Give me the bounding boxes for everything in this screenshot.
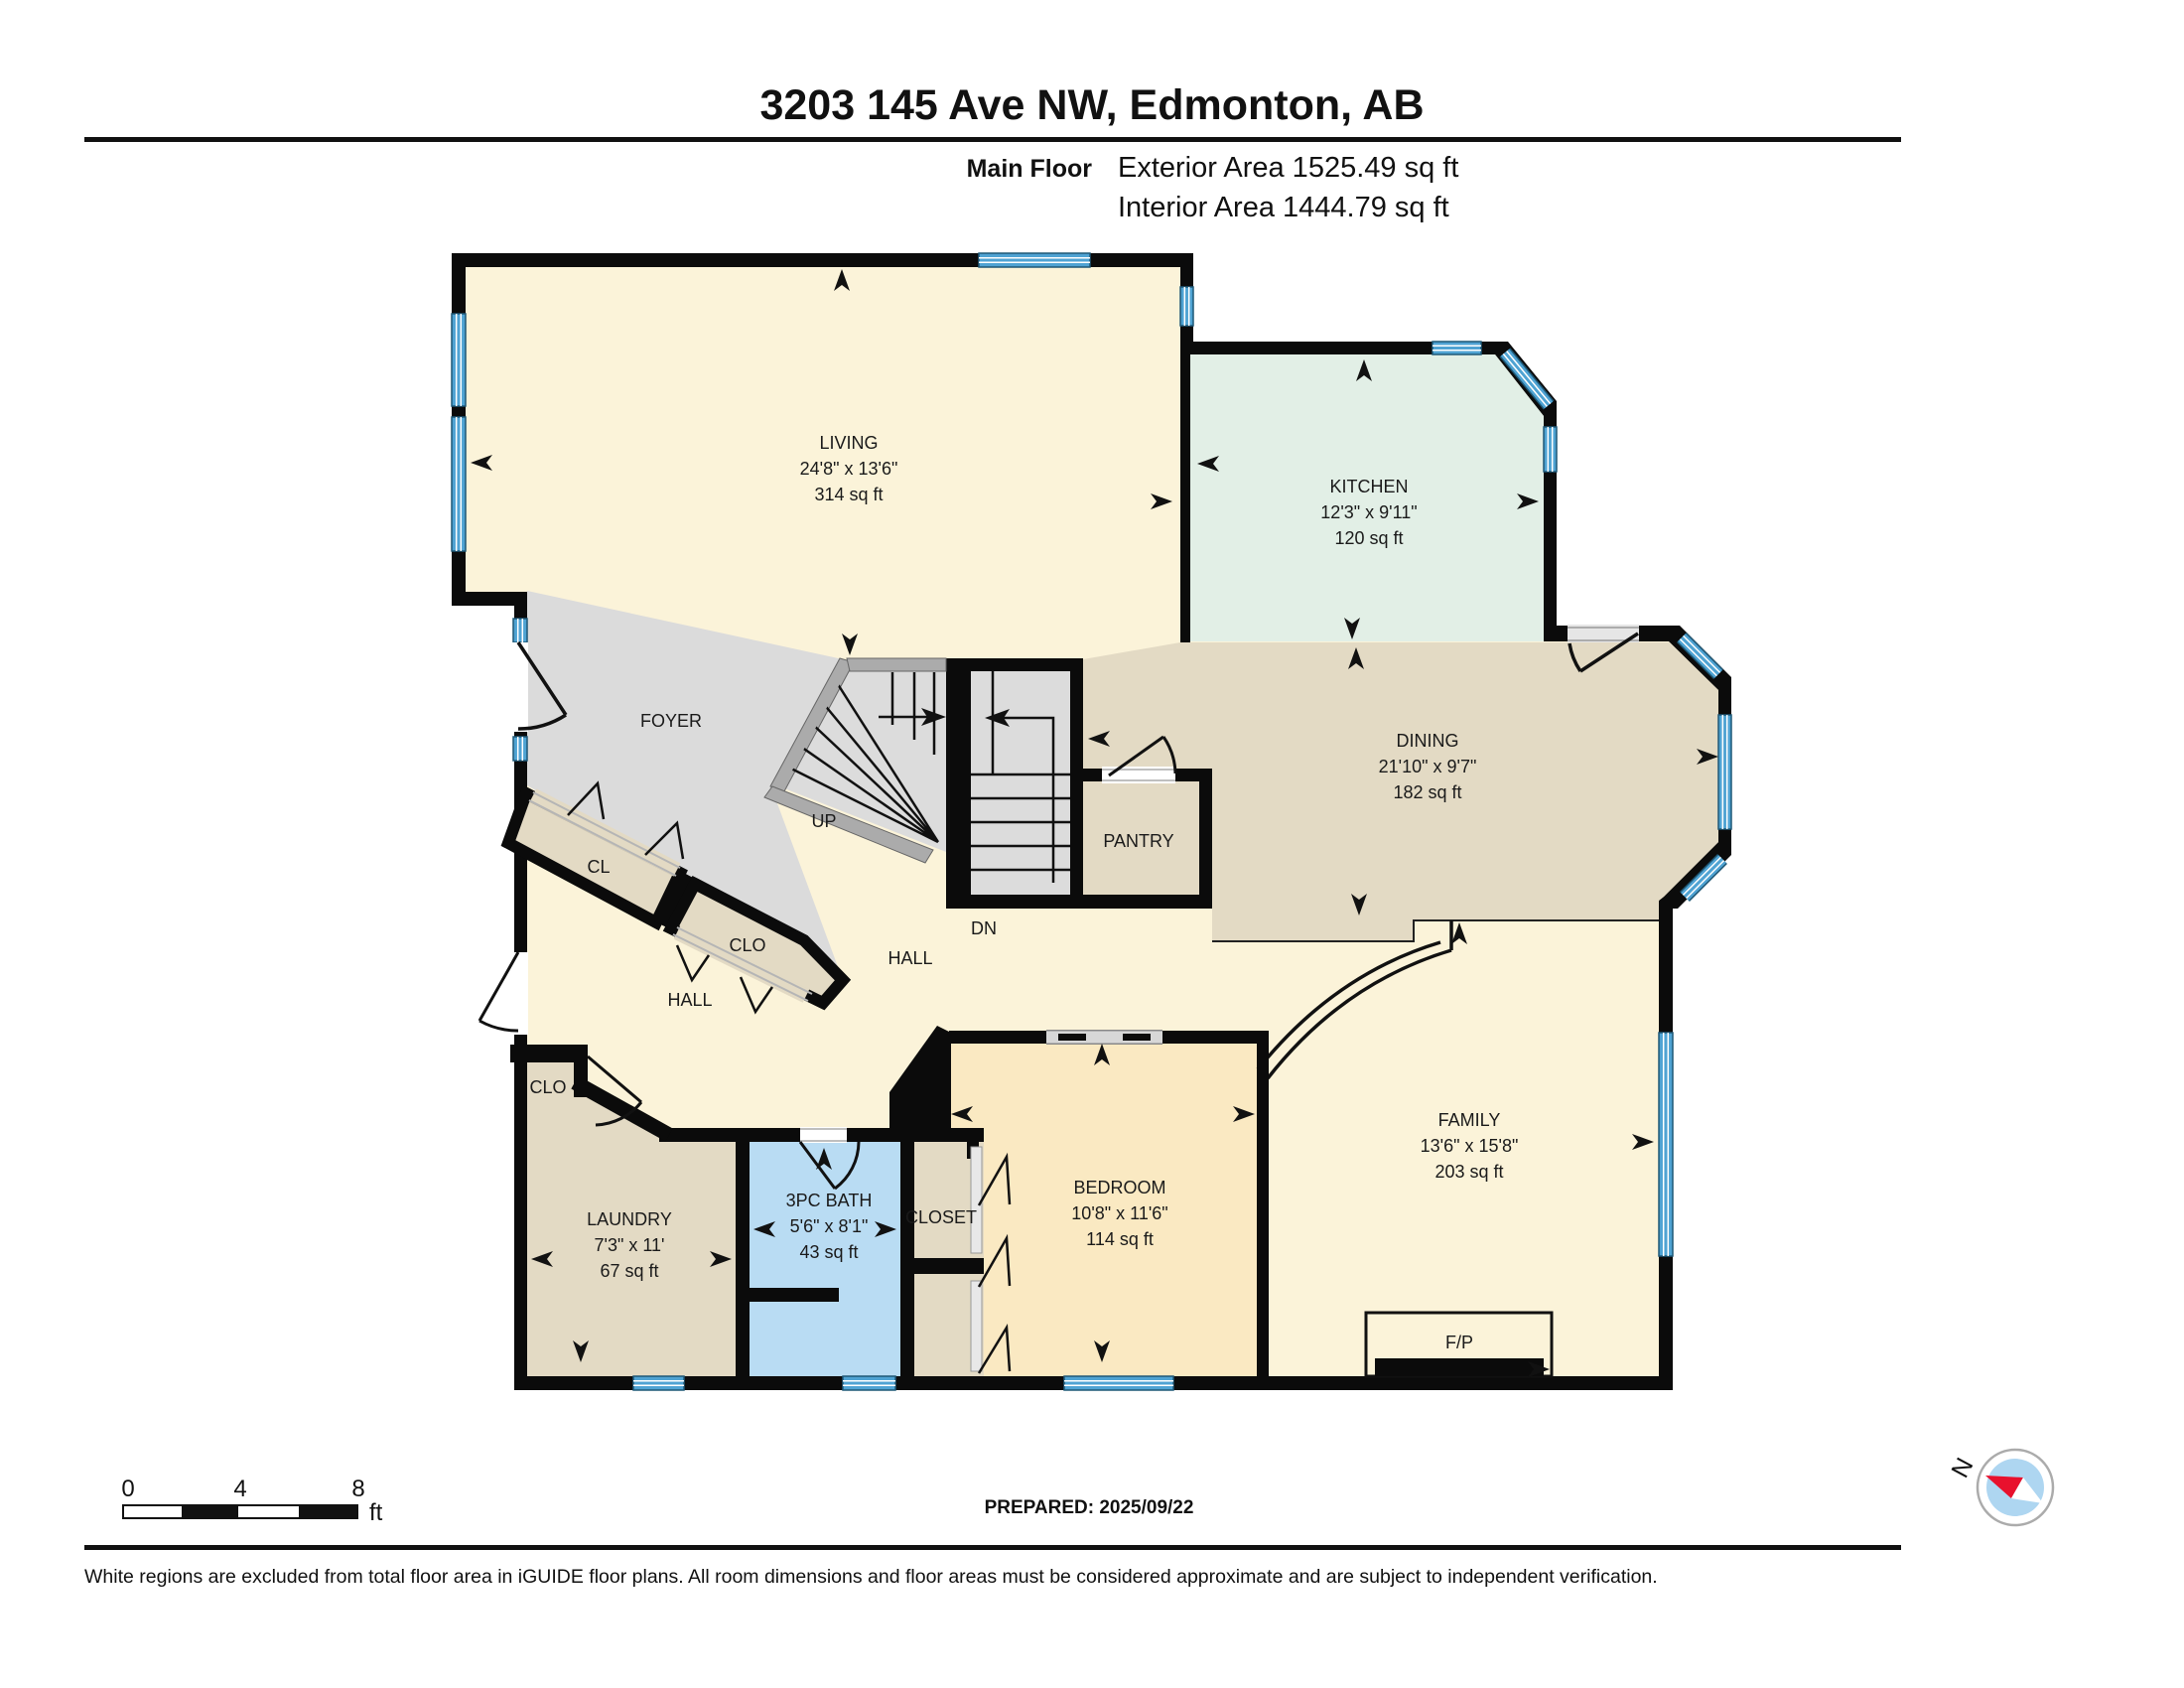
svg-text:CLO: CLO (729, 935, 765, 955)
svg-text:White regions are excluded fro: White regions are excluded from total fl… (84, 1566, 1658, 1588)
svg-text:114 sq ft: 114 sq ft (1086, 1229, 1154, 1249)
svg-text:0: 0 (121, 1476, 134, 1502)
svg-text:F/P: F/P (1445, 1333, 1473, 1352)
svg-text:3203 145 Ave NW, Edmonton, AB: 3203 145 Ave NW, Edmonton, AB (759, 81, 1424, 129)
svg-text:5'6" x 8'1": 5'6" x 8'1" (790, 1216, 869, 1236)
svg-text:CLOSET: CLOSET (905, 1207, 977, 1227)
svg-text:DINING: DINING (1397, 731, 1459, 751)
svg-text:24'8" x 13'6": 24'8" x 13'6" (800, 459, 898, 479)
svg-text:120 sq ft: 120 sq ft (1334, 528, 1403, 548)
svg-text:182 sq ft: 182 sq ft (1393, 782, 1461, 802)
svg-text:7'3" x 11': 7'3" x 11' (595, 1235, 665, 1255)
svg-text:3PC BATH: 3PC BATH (786, 1191, 873, 1210)
svg-text:21'10" x 9'7": 21'10" x 9'7" (1379, 757, 1477, 776)
svg-text:LAUNDRY: LAUNDRY (587, 1209, 672, 1229)
svg-text:Interior Area 1444.79 sq ft: Interior Area 1444.79 sq ft (1118, 192, 1449, 223)
svg-text:Exterior Area 1525.49 sq ft: Exterior Area 1525.49 sq ft (1118, 152, 1458, 184)
svg-text:8: 8 (351, 1476, 364, 1502)
svg-text:LIVING: LIVING (819, 433, 878, 453)
svg-text:CL: CL (587, 857, 610, 877)
svg-text:DN: DN (971, 918, 997, 938)
svg-text:CLO: CLO (529, 1077, 566, 1097)
svg-text:BEDROOM: BEDROOM (1073, 1178, 1165, 1197)
svg-text:HALL: HALL (887, 948, 932, 968)
svg-text:Main Floor: Main Floor (967, 155, 1093, 183)
svg-text:12'3" x 9'11": 12'3" x 9'11" (1320, 502, 1417, 522)
svg-text:314 sq ft: 314 sq ft (814, 485, 883, 504)
svg-text:HALL: HALL (667, 990, 712, 1010)
svg-text:10'8" x 11'6": 10'8" x 11'6" (1071, 1203, 1167, 1223)
svg-text:UP: UP (811, 811, 836, 831)
svg-text:ft: ft (369, 1499, 383, 1526)
svg-text:FOYER: FOYER (640, 711, 702, 731)
svg-text:67 sq ft: 67 sq ft (600, 1261, 658, 1281)
svg-text:4: 4 (233, 1476, 246, 1502)
svg-text:203 sq ft: 203 sq ft (1434, 1162, 1503, 1182)
svg-text:13'6" x 15'8": 13'6" x 15'8" (1421, 1136, 1519, 1156)
svg-text:43 sq ft: 43 sq ft (799, 1242, 858, 1262)
svg-text:FAMILY: FAMILY (1438, 1110, 1501, 1130)
svg-text:PREPARED: 2025/09/22: PREPARED: 2025/09/22 (985, 1497, 1194, 1518)
svg-text:KITCHEN: KITCHEN (1329, 477, 1408, 496)
svg-text:PANTRY: PANTRY (1103, 831, 1173, 851)
